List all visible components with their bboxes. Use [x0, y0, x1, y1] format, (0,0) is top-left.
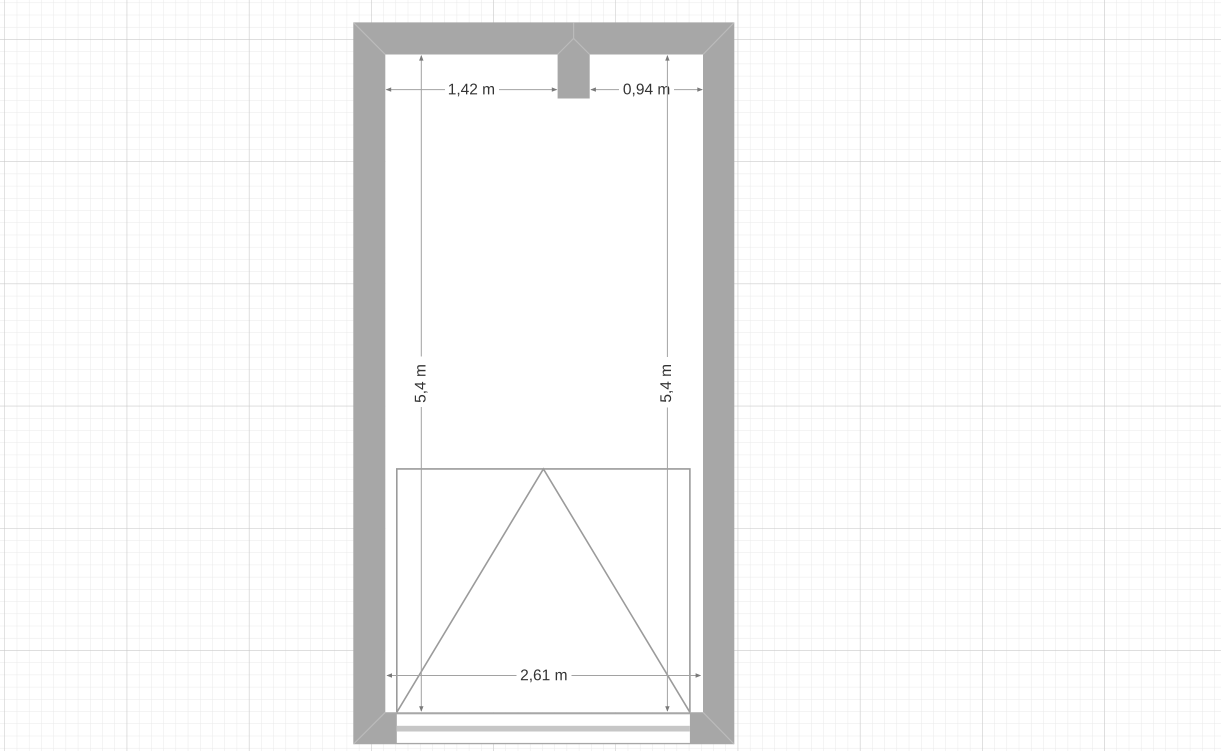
- svg-text:0,94 m: 0,94 m: [623, 81, 670, 98]
- svg-text:5,4 m: 5,4 m: [413, 364, 430, 403]
- svg-text:5,4 m: 5,4 m: [658, 364, 675, 403]
- svg-text:2,61 m: 2,61 m: [520, 667, 567, 684]
- svg-text:1,42 m: 1,42 m: [448, 81, 495, 98]
